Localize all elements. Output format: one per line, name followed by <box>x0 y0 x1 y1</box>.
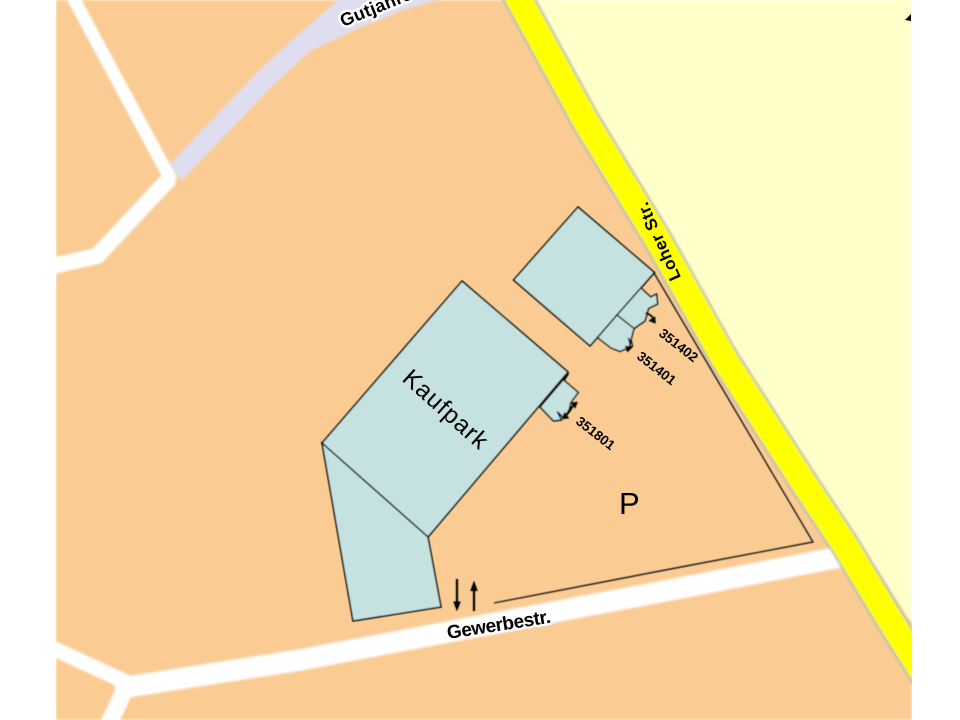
svg-text:P: P <box>619 486 640 521</box>
